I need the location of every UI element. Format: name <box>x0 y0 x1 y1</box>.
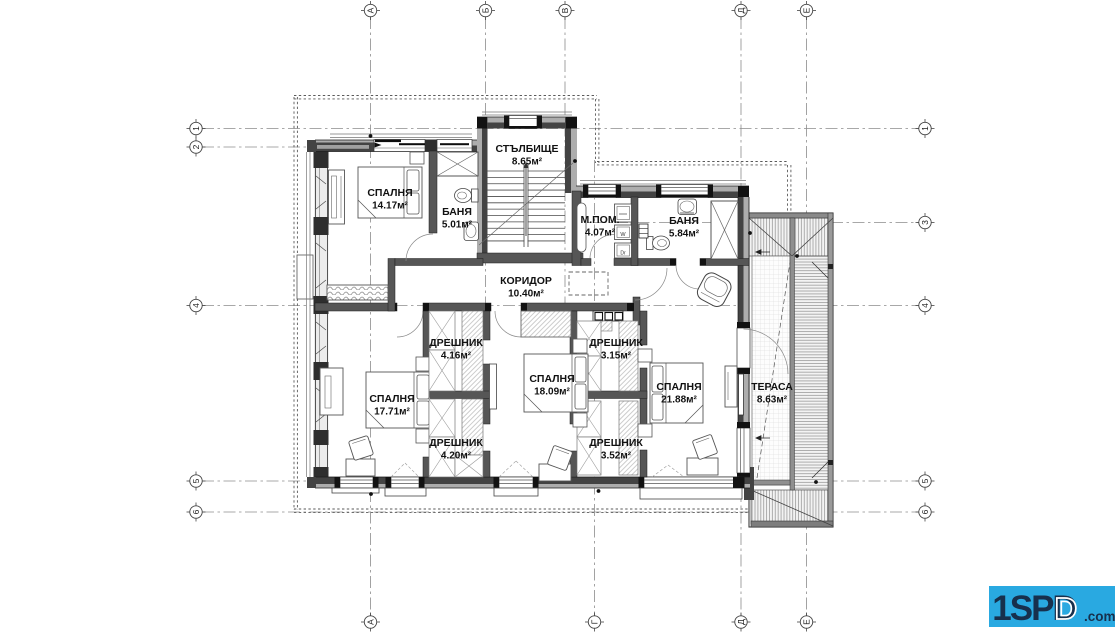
svg-text:4.16м²: 4.16м² <box>441 351 472 362</box>
svg-text:10.40м²: 10.40м² <box>508 289 544 300</box>
svg-text:В: В <box>560 7 570 13</box>
svg-text:3.15м²: 3.15м² <box>601 351 632 362</box>
svg-text:6: 6 <box>191 509 201 514</box>
svg-text:БАНЯ: БАНЯ <box>669 215 699 227</box>
svg-text:ДРЕШНИК: ДРЕШНИК <box>429 337 483 349</box>
svg-text:5.01м²: 5.01м² <box>442 220 473 231</box>
svg-text:4.20м²: 4.20м² <box>441 451 472 462</box>
svg-text:8.65м²: 8.65м² <box>512 157 543 168</box>
svg-text:D: D <box>1055 591 1077 626</box>
svg-text:ДРЕШНИК: ДРЕШНИК <box>589 437 643 449</box>
svg-text:21.88м²: 21.88м² <box>661 395 697 406</box>
svg-text:14.17м²: 14.17м² <box>372 201 408 212</box>
svg-text:СПАЛНЯ: СПАЛНЯ <box>529 373 574 385</box>
svg-text:18.09м²: 18.09м² <box>534 387 570 398</box>
svg-text:.com: .com <box>1084 609 1116 624</box>
svg-text:1: 1 <box>191 126 201 131</box>
svg-text:Д: Д <box>736 619 746 625</box>
svg-text:5: 5 <box>191 478 201 483</box>
svg-text:КОРИДОР: КОРИДОР <box>500 275 552 287</box>
svg-text:А: А <box>366 619 376 625</box>
svg-text:СПАЛНЯ: СПАЛНЯ <box>367 187 412 199</box>
svg-text:3: 3 <box>920 220 930 225</box>
svg-text:4.07м²: 4.07м² <box>585 228 616 239</box>
svg-text:5.84м²: 5.84м² <box>669 229 700 240</box>
svg-text:ТЕРАСА: ТЕРАСА <box>751 381 793 393</box>
svg-text:Д: Д <box>736 7 746 13</box>
svg-text:ДРЕШНИК: ДРЕШНИК <box>589 337 643 349</box>
svg-text:4: 4 <box>191 303 201 308</box>
svg-text:СПАЛНЯ: СПАЛНЯ <box>656 381 701 393</box>
svg-text:БАНЯ: БАНЯ <box>442 206 472 218</box>
svg-text:ДРЕШНИК: ДРЕШНИК <box>429 437 483 449</box>
svg-text:Dr: Dr <box>620 251 626 257</box>
svg-text:2: 2 <box>191 144 201 149</box>
svg-text:М.ПОМ.: М.ПОМ. <box>580 214 619 226</box>
svg-text:СПАЛНЯ: СПАЛНЯ <box>369 393 414 405</box>
svg-text:4: 4 <box>920 303 930 308</box>
svg-text:СТЪЛБИЩЕ: СТЪЛБИЩЕ <box>495 143 558 155</box>
svg-text:8.63м²: 8.63м² <box>757 395 788 406</box>
svg-text:А: А <box>366 7 376 13</box>
svg-text:Е: Е <box>802 7 812 13</box>
svg-text:Е: Е <box>802 619 812 625</box>
svg-text:5: 5 <box>920 478 930 483</box>
svg-text:W: W <box>620 232 626 238</box>
svg-text:Г: Г <box>590 619 600 624</box>
svg-text:3.52м²: 3.52м² <box>601 451 632 462</box>
svg-text:17.71м²: 17.71м² <box>374 407 410 418</box>
svg-text:1: 1 <box>920 126 930 131</box>
svg-text:Б: Б <box>481 7 491 13</box>
svg-text:6: 6 <box>920 509 930 514</box>
